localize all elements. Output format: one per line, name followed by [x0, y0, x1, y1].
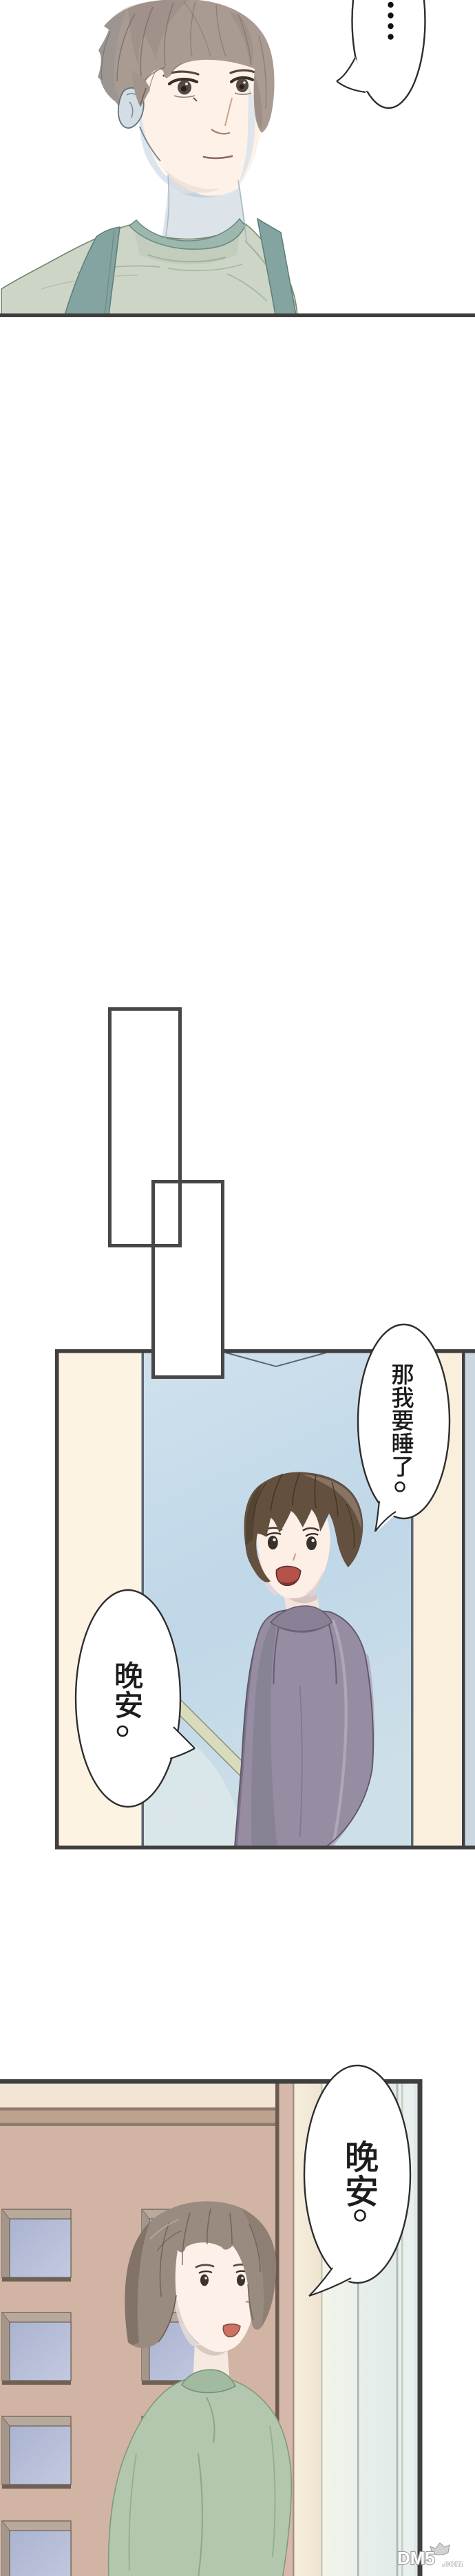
svg-text:DM5: DM5 — [397, 2548, 435, 2568]
svg-text:.com: .com — [442, 2558, 463, 2568]
